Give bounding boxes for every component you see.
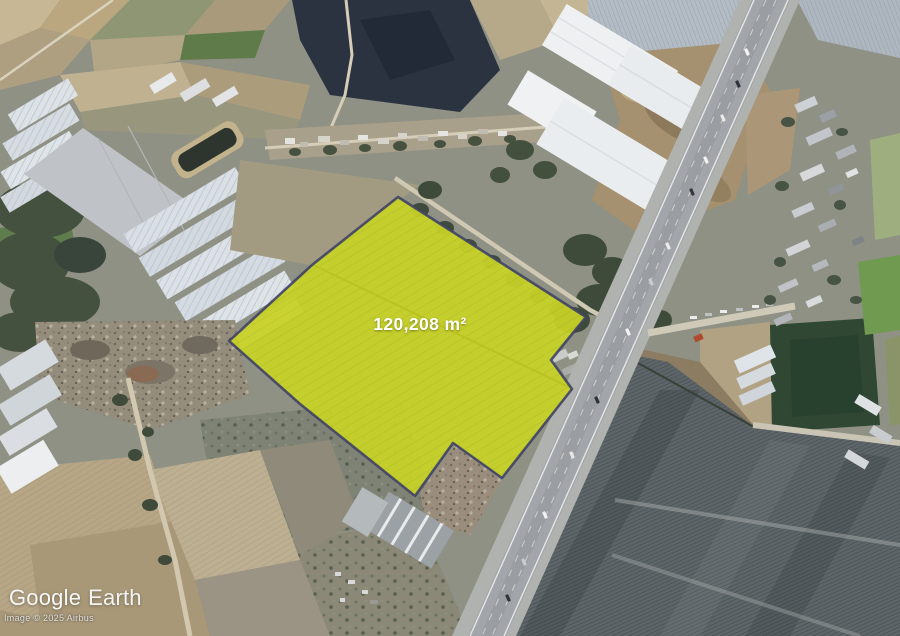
logo-google-word: Google bbox=[9, 585, 81, 610]
attribution-text: Image © 2025 Airbus bbox=[4, 613, 94, 623]
logo-earth-word: Earth bbox=[88, 585, 142, 610]
parcel-area-label: 120,208 m² bbox=[340, 314, 500, 335]
google-earth-window: 120,208 m² GoogleEarth Image © 2025 Airb… bbox=[0, 0, 900, 636]
google-earth-logo: GoogleEarth bbox=[9, 585, 142, 611]
